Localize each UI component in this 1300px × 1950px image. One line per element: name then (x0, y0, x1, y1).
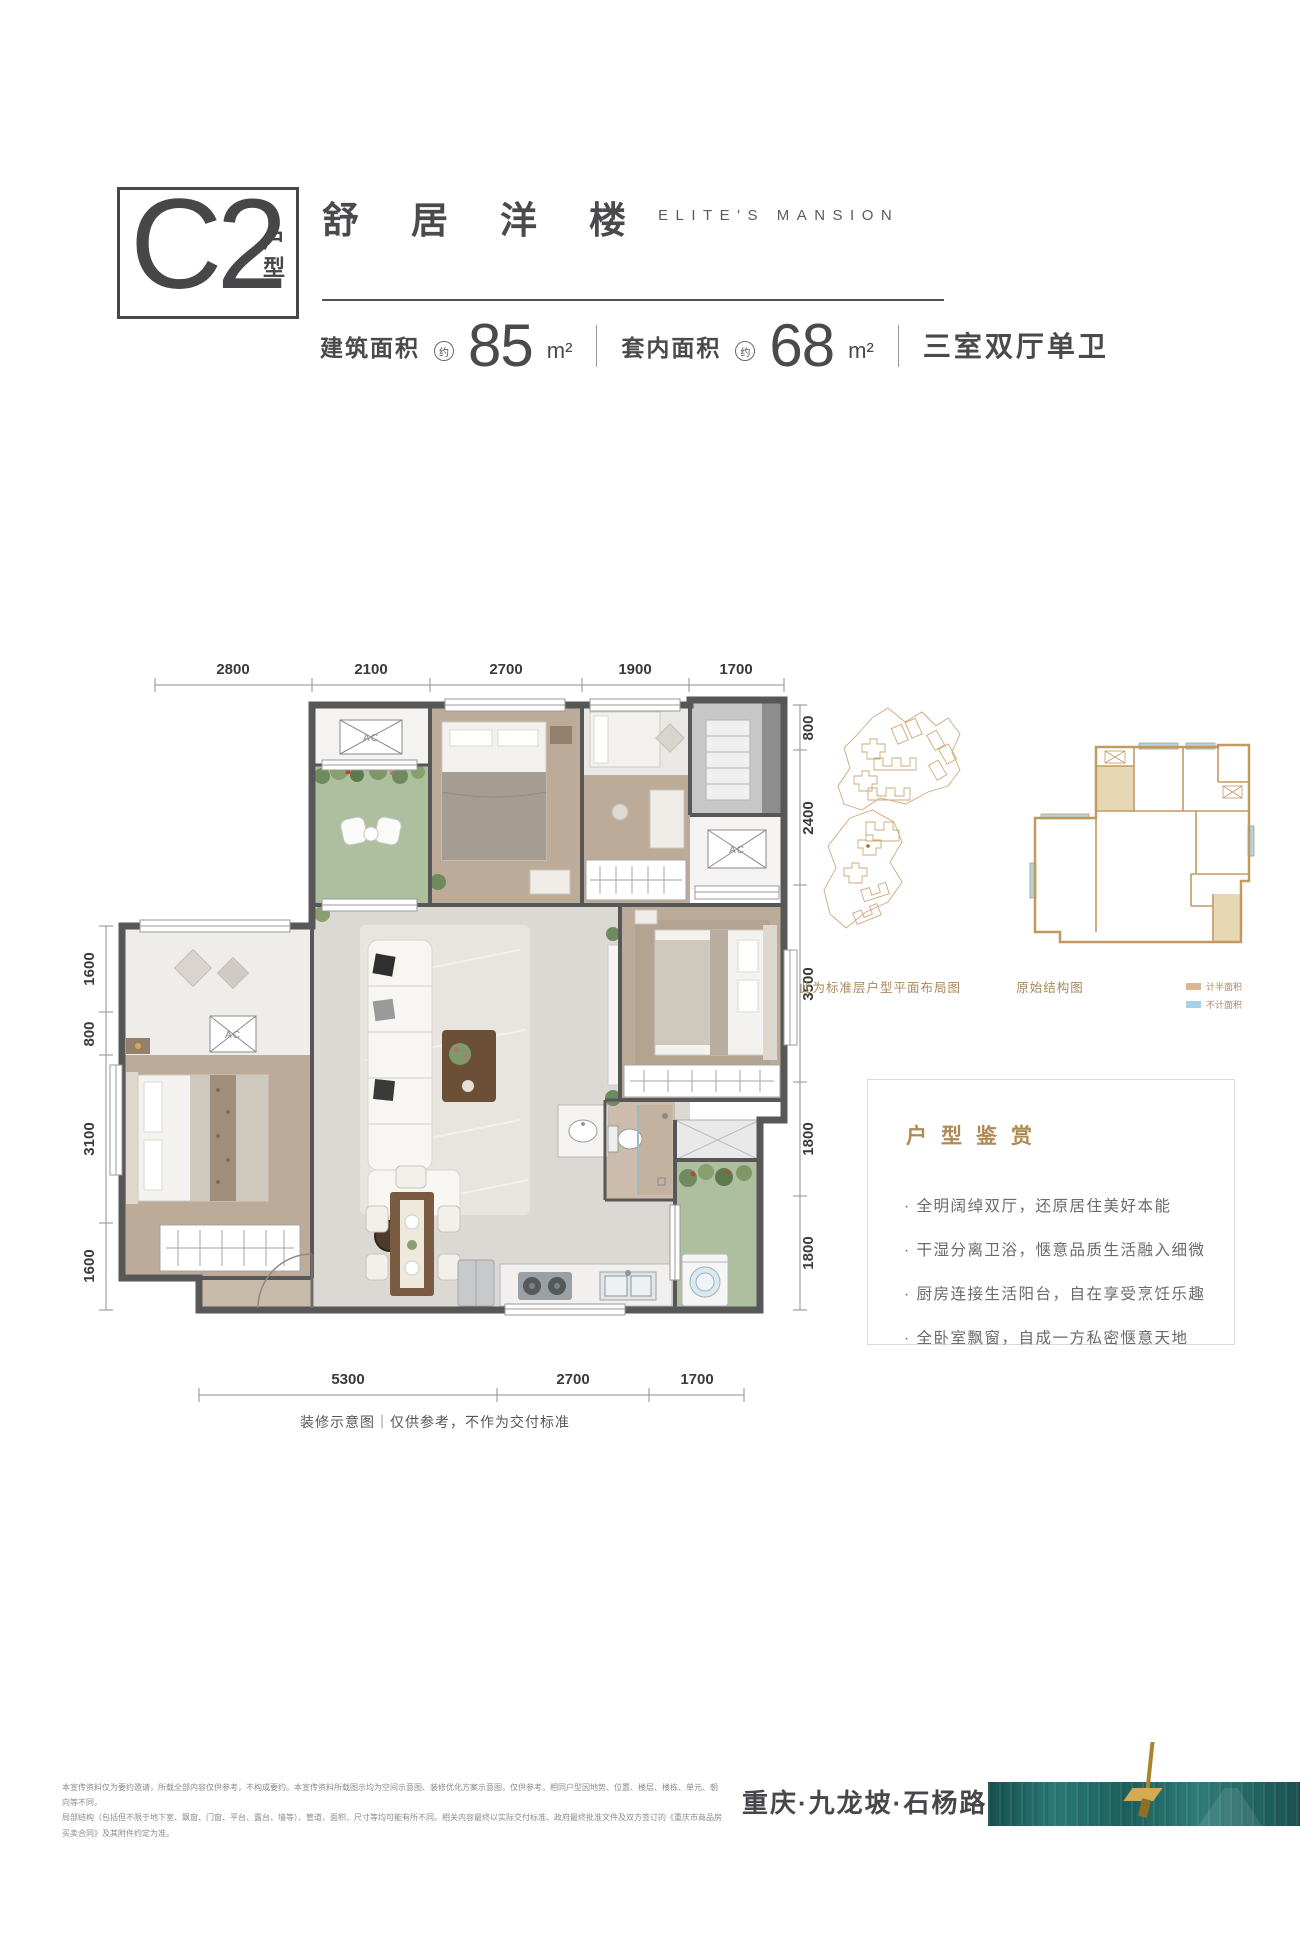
stat-value: 85 (468, 318, 533, 373)
area-legend: 计半面积 不计面积 (1186, 980, 1242, 1016)
svg-text:1600: 1600 (81, 952, 98, 985)
svg-text:1700: 1700 (719, 661, 752, 678)
svg-text:1900: 1900 (618, 661, 651, 678)
ac-unit-balcony: AC (340, 720, 402, 754)
legend-label: 不计面积 (1206, 998, 1242, 1011)
legend-item-half-area: 计半面积 (1186, 980, 1242, 993)
stat-unit: m² (547, 338, 573, 373)
svg-text:800: 800 (81, 1021, 98, 1046)
svg-text:2800: 2800 (216, 661, 249, 678)
plan-caption: 装修示意图｜仅供参考，不作为交付标准 (235, 1412, 635, 1432)
svg-text:2700: 2700 (556, 1371, 589, 1388)
brochure-page: C2 户型 舒居洋楼 ELITE'S MANSION 建筑面积 约 85 m² … (0, 0, 1300, 1950)
svg-text:2100: 2100 (354, 661, 387, 678)
room-layout-desc: 三室双厅单卫 (923, 325, 1109, 373)
half-area-swatch (1186, 983, 1201, 990)
svg-text:1800: 1800 (800, 1122, 817, 1155)
highlights-list: · 全明阔绰双厅，还原居住美好本能 · 干湿分离卫浴，惬意品质生活融入细微 · … (904, 1172, 1214, 1348)
unit-highlights-box: 户型鉴赏 · 全明阔绰双厅，还原居住美好本能 · 干湿分离卫浴，惬意品质生活融入… (867, 1079, 1235, 1345)
svg-text:AC: AC (225, 1030, 241, 1041)
highlight-item: · 厨房连接生活阳台，自在享受烹饪乐趣 (904, 1282, 1214, 1304)
project-title-cn: 舒居洋楼 (322, 190, 678, 244)
svg-text:AC: AC (729, 845, 745, 856)
legend-label: 计半面积 (1206, 980, 1242, 993)
disclaimer-line: 本宣传资料仅为要约邀请，所载全部内容仅供参考，不构成要约。本宣传资料所载图示均为… (62, 1780, 722, 1810)
ac-unit-left: AC (210, 1016, 256, 1052)
floorplan-svg: AC AC AC 2800 210 (60, 560, 840, 1420)
area-stats: 建筑面积 约 85 m² 套内面积 约 68 m² 三室双厅单卫 (320, 318, 1109, 373)
kitchen (458, 1260, 672, 1306)
project-location: 重庆·九龙坡·石杨路 (742, 1783, 987, 1820)
unit-code-box: C2 户型 (117, 187, 299, 319)
approx-circle-icon: 约 (434, 341, 454, 361)
approx-circle-icon: 约 (735, 341, 755, 361)
stat-separator (596, 325, 597, 367)
svg-text:1700: 1700 (680, 1371, 713, 1388)
stat-label: 套内面积 (621, 329, 721, 373)
highlights-title: 户型鉴赏 (906, 1120, 1046, 1150)
svg-text:5300: 5300 (331, 1371, 364, 1388)
svg-text:3100: 3100 (81, 1122, 98, 1155)
highlight-item: · 全明阔绰双厅，还原居住美好本能 (904, 1194, 1214, 1216)
stat-label: 建筑面积 (320, 329, 420, 373)
disclaimer-line: 局部结构（包括但不限于地下室、飘窗、门窗、平台、露台、墙等）、管道、面积、尺寸等… (62, 1810, 722, 1840)
svg-text:1800: 1800 (800, 1236, 817, 1269)
project-title-en: ELITE'S MANSION (658, 207, 899, 224)
footer-disclaimer: 本宣传资料仅为要约邀请，所载全部内容仅供参考，不构成要约。本宣传资料所载图示均为… (62, 1780, 722, 1841)
stat-value: 68 (769, 318, 834, 373)
site-plan-caption: 此为标准层户型平面布局图 (770, 977, 990, 996)
structure-caption: 原始结构图 (985, 977, 1115, 996)
structure-diagram (1015, 700, 1260, 965)
no-area-swatch (1186, 1001, 1201, 1008)
master-bedroom (624, 910, 780, 1097)
svg-text:2700: 2700 (489, 661, 522, 678)
stat-separator (898, 325, 899, 367)
ac-unit-right: AC (708, 830, 766, 868)
highlight-item: · 全卧室飘窗，自成一方私密惬意天地 (904, 1326, 1214, 1348)
header-divider (322, 299, 944, 301)
legend-item-no-area: 不计面积 (1186, 998, 1242, 1011)
svg-text:AC: AC (363, 733, 379, 744)
svg-text:1600: 1600 (81, 1249, 98, 1282)
site-plan-sketch (810, 700, 1010, 965)
highlight-item: · 干湿分离卫浴，惬意品质生活融入细微 (904, 1238, 1214, 1260)
stat-unit: m² (848, 338, 874, 373)
unit-type-label: 户型 (256, 228, 288, 284)
